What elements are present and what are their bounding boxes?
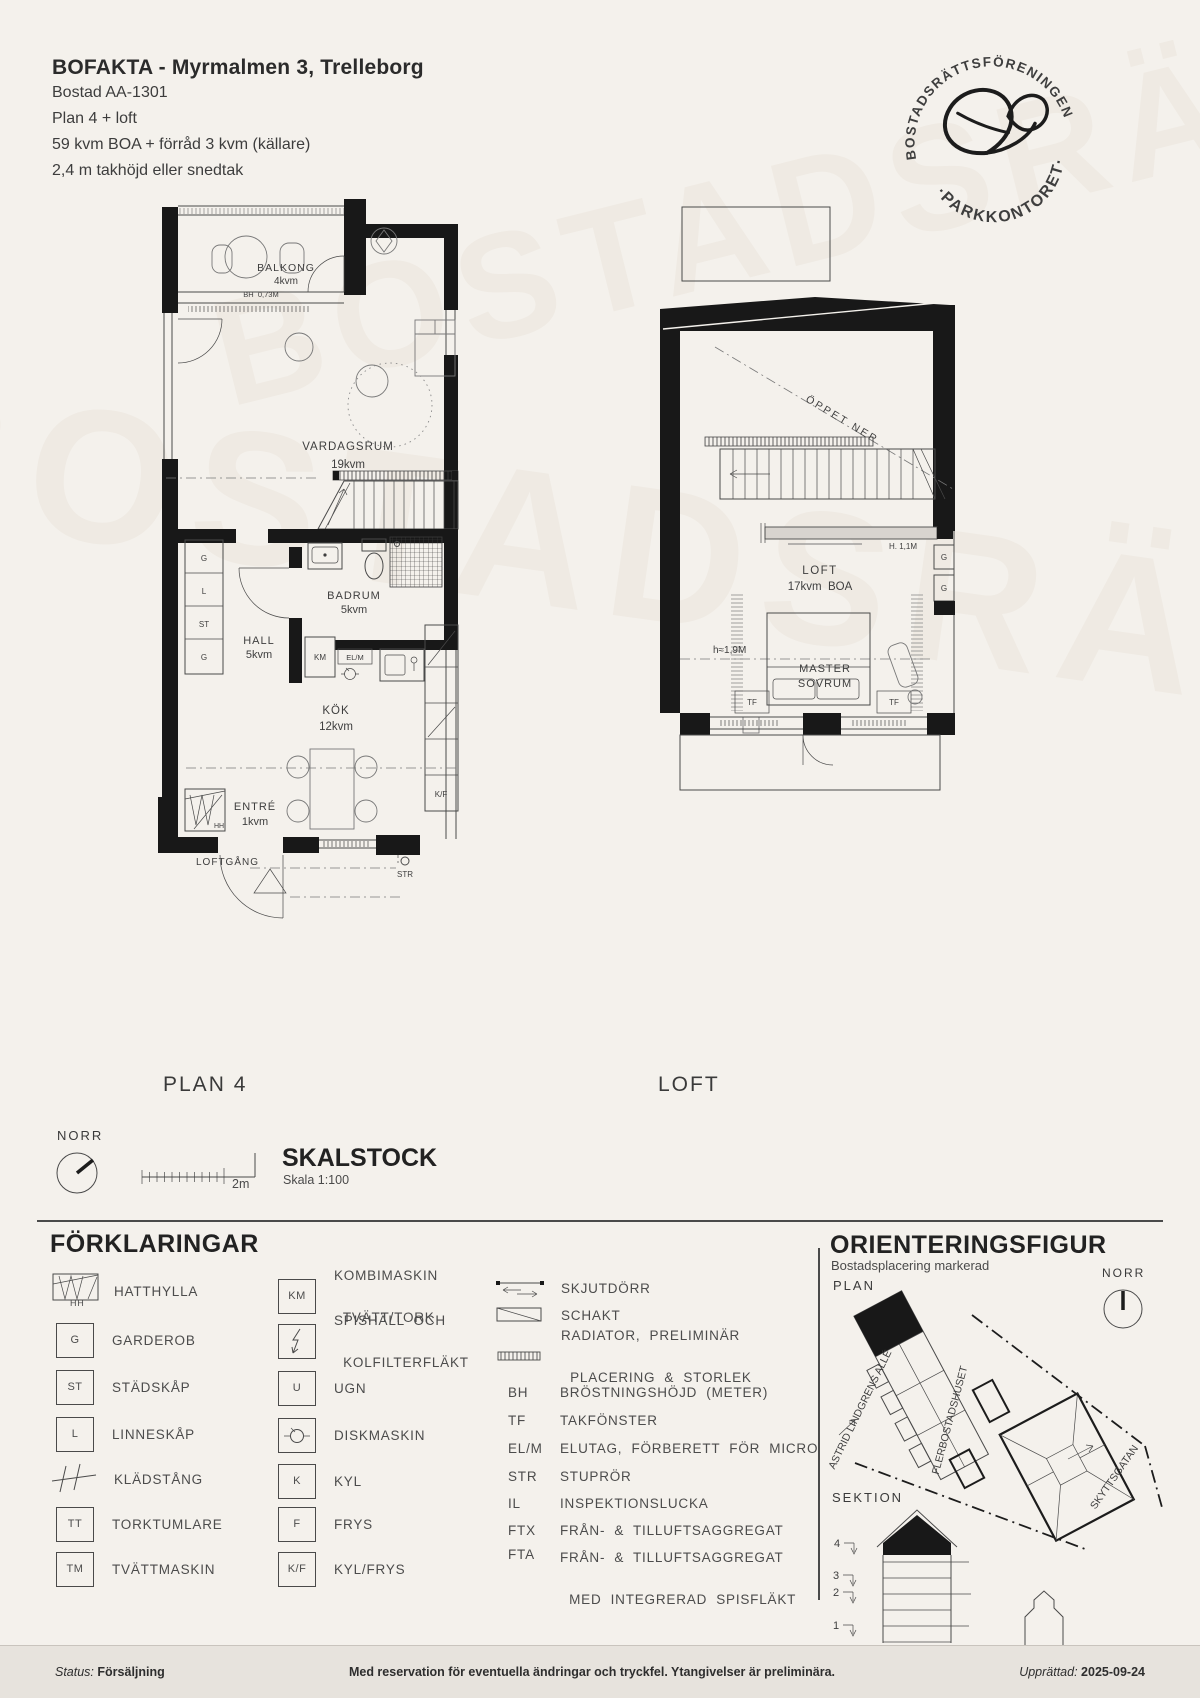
label-km: KM (314, 653, 326, 662)
dining-set (287, 749, 377, 829)
caption-plan4: PLAN 4 (163, 1073, 247, 1097)
legend-item-diskmaskin: DISKMASKIN (278, 1417, 425, 1453)
label-str: STR (397, 870, 413, 879)
closet-l: L (202, 587, 207, 596)
terrace-door (803, 735, 833, 765)
scale-length: 2m (232, 1177, 249, 1191)
legend-item-torktumlare: TT TORKTUMLARE (56, 1506, 223, 1542)
room-label-hall: HALL (243, 635, 275, 647)
legend-label: FRYS (334, 1514, 373, 1535)
header: BOFAKTA - Myrmalmen 3, Trelleborg Bostad… (52, 56, 424, 184)
room-label-entre: ENTRÉ (234, 800, 276, 813)
abbr: IL (508, 1496, 560, 1511)
room-label-master-1: MASTER (799, 663, 851, 675)
page-title: BOFAKTA - Myrmalmen 3, Trelleborg (52, 56, 424, 80)
symbol-box: K/F (278, 1552, 316, 1587)
kitchen-counter-right (425, 625, 458, 811)
legend-label: KYL (334, 1471, 362, 1492)
footer-disclaimer: Med reservation för eventuella ändringar… (165, 1665, 1019, 1679)
brand-logo: BOSTADSRÄTTSFÖRENINGEN ·PARKKONTORET· (882, 26, 1092, 226)
room-label-loft: LOFT (802, 565, 837, 577)
footer-created-label: Upprättad: (1019, 1665, 1077, 1679)
label-bh: BH 0,73M (243, 290, 278, 299)
label-h19: h≈1,9M (713, 645, 746, 656)
symbol-box: F (278, 1507, 316, 1542)
legend-label: TVÄTTMASKIN (112, 1559, 215, 1580)
room-area-balkong: 4kvm (274, 276, 298, 287)
door-arc (178, 319, 222, 363)
room-label-master-2: SOVRUM (798, 678, 852, 690)
room-label-balkong: BALKONG (257, 262, 315, 274)
loft-stairs (705, 437, 945, 499)
bottom-walls (168, 835, 420, 855)
legend-label-line1: SPISHÄLL OCH (334, 1313, 446, 1328)
legend-item-skjutdorr: SKJUTDÖRR (495, 1276, 651, 1300)
symbol-box: G (56, 1323, 94, 1358)
room-area-entre: 1kvm (242, 816, 268, 828)
map-street2-label: SKYTTSGATAN (1088, 1443, 1141, 1512)
abbr-label: TAKFÖNSTER (560, 1410, 658, 1431)
legend-abbr-str: STR STUPRÖR (508, 1465, 632, 1487)
label-kf: K/F (435, 790, 448, 799)
skjutdorr-icon (495, 1278, 545, 1298)
closet-g2: G (941, 584, 947, 593)
room-area-vardagsrum: 19kvm (331, 459, 365, 471)
skalstock-scale: Skala 1:100 (283, 1173, 349, 1187)
abbr-label-line1: FRÅN- & TILLUFTSAGGREGAT (560, 1550, 784, 1565)
map-block-small-1 (973, 1380, 1009, 1422)
floor-3: 3 (833, 1570, 839, 1582)
roof-outline (682, 207, 830, 281)
loft-closets: G G (934, 545, 955, 615)
legend-label: LINNESKÅP (112, 1424, 195, 1445)
floorplan-loft: ÖPPET NER H. 1,1M LOFT 17kvm BOA G G h≈1… (655, 197, 965, 797)
label-hh: HH (214, 823, 224, 830)
footer-status-value: Försäljning (97, 1665, 164, 1679)
legend-item-garderob: G GARDEROB (56, 1322, 196, 1358)
section-figure: 4 3 2 1 (820, 1505, 1190, 1645)
footer-status-label: Status: (55, 1665, 94, 1679)
section-house (877, 1510, 971, 1643)
norr-label: NORR (57, 1128, 103, 1143)
room-label-kok: KÖK (322, 705, 349, 717)
legend-label: DISKMASKIN (334, 1425, 425, 1446)
room-area-hall: 5kvm (246, 649, 272, 661)
legend-item-spishall: SPISHÄLL OCH KOLFILTERFLÄKT (278, 1323, 469, 1359)
closet-st: ST (199, 620, 209, 629)
logo-arc-top: BOSTADSRÄTTSFÖRENINGEN (883, 34, 1077, 163)
abbr: STR (508, 1469, 560, 1484)
orientation-norr-label: NORR (1102, 1266, 1145, 1280)
abbr-label: STUPRÖR (560, 1466, 632, 1487)
legend-label: KLÄDSTÅNG (114, 1469, 203, 1490)
logo-group: BOSTADSRÄTTSFÖRENINGEN ·PARKKONTORET· (882, 26, 1092, 226)
room-area-badrum: 5kvm (341, 604, 367, 616)
lightning-icon (287, 1327, 307, 1355)
symbol-box: TT (56, 1507, 94, 1542)
label-tf2: TF (889, 698, 899, 707)
legend-item-kylfrys: K/F KYL/FRYS (278, 1551, 405, 1587)
legend-item-tvattmaskin: TM TVÄTTMASKIN (56, 1551, 215, 1587)
abbr: TF (508, 1413, 560, 1428)
legend-label: HATTHYLLA (114, 1281, 198, 1302)
legend-item-radiator: RADIATOR, PRELIMINÄR PLACERING & STORLEK (495, 1334, 752, 1378)
room-label-vardagsrum: VARDAGSRUM (302, 441, 394, 453)
map-block-small-2 (950, 1449, 984, 1488)
legend-abbr-bh: BH BRÖSTNINGSHÖJD (METER) (508, 1381, 768, 1403)
legend-label-line2: KOLFILTERFLÄKT (343, 1355, 469, 1370)
takfonster (735, 691, 911, 713)
label-elm: EL/M (346, 653, 364, 662)
legend-abbr-il: IL INSPEKTIONSLUCKA (508, 1492, 709, 1514)
header-area: 59 kvm BOA + förråd 3 kvm (källare) (52, 132, 424, 158)
symbol-box: TM (56, 1552, 94, 1587)
footer-created-value: 2025-09-24 (1081, 1665, 1145, 1679)
loft-walls (660, 297, 955, 713)
abbr: FTA (508, 1547, 560, 1562)
orientation-heading: ORIENTERINGSFIGUR (830, 1231, 1107, 1260)
symbol-box: U (278, 1371, 316, 1406)
closet-g1: G (201, 554, 207, 563)
symbol-box: KM (278, 1279, 316, 1314)
stairs (318, 471, 458, 531)
legend-label: TORKTUMLARE (112, 1514, 223, 1535)
legend-item-schakt: SCHAKT (495, 1303, 621, 1327)
abbr-label-line2: MED INTEGRERAD SPISFLÄKT (569, 1592, 796, 1607)
kladstang-icon (50, 1462, 98, 1496)
orientation-sub: Bostadsplacering markerad (831, 1258, 989, 1273)
footer-bar: Status: Försäljning Med reservation för … (0, 1645, 1200, 1698)
legend-item-linneskap: L LINNESKÅP (56, 1416, 195, 1452)
legend-abbr-tf: TF TAKFÖNSTER (508, 1409, 658, 1431)
header-ceiling: 2,4 m takhöjd eller snedtak (52, 158, 424, 184)
symbol-box: K (278, 1464, 316, 1499)
closet-g2: G (201, 653, 207, 662)
leaf-icon (938, 74, 1055, 163)
room-area-kok: 12kvm (319, 721, 353, 733)
legend-label-line1: KOMBIMASKIN (334, 1268, 438, 1283)
legend-item-kladstang: KLÄDSTÅNG (50, 1461, 203, 1497)
label-tf1: TF (747, 698, 757, 707)
legend-label: GARDEROB (112, 1330, 196, 1351)
symbol-box: ST (56, 1370, 94, 1405)
room-label-loftgang: LOFTGÅNG (196, 855, 259, 868)
caption-loft: LOFT (658, 1073, 720, 1097)
abbr: BH (508, 1385, 560, 1400)
floor-markers: 4 3 2 1 (833, 1538, 857, 1636)
floorplan-plan4: BALKONG 4kvm BH 0,73M VARDAGSRUM (158, 197, 468, 947)
legend-label: UGN (334, 1378, 366, 1399)
header-unit: Bostad AA-1301 (52, 80, 424, 106)
abbr-label: INSPEKTIONSLUCKA (560, 1493, 709, 1514)
room-label-badrum: BADRUM (327, 590, 381, 602)
header-plan: Plan 4 + loft (52, 106, 424, 132)
legend-item-ugn: U UGN (278, 1370, 366, 1406)
legend-item-stadskap: ST STÄDSKÅP (56, 1369, 190, 1405)
map-street1-label: ASTRID LINDGRENS ALLÉ (825, 1348, 894, 1471)
abbr-label: ELUTAG, FÖRBERETT FÖR MICRO (560, 1438, 818, 1459)
terrace-outline (680, 735, 940, 790)
floor-2: 2 (833, 1587, 839, 1599)
diskmaskin-icon (282, 1423, 312, 1447)
abbr: EL/M (508, 1441, 560, 1456)
hall-closets: G L ST G (185, 540, 223, 674)
symbol-box: L (56, 1417, 94, 1452)
livingroom-furniture (285, 228, 455, 447)
skalstock-title: SKALSTOCK (282, 1144, 437, 1173)
room-area-loft: 17kvm BOA (788, 581, 853, 593)
legend-heading: FÖRKLARINGAR (50, 1230, 259, 1259)
legend-abbr-elm: EL/M ELUTAG, FÖRBERETT FÖR MICRO (508, 1437, 818, 1459)
legend-label-line1: RADIATOR, PRELIMINÄR (561, 1328, 740, 1343)
legend-item-kyl: K KYL (278, 1463, 362, 1499)
abbr-label: FRÅN- & TILLUFTSAGGREGAT (560, 1520, 784, 1541)
abbr: FTX (508, 1523, 560, 1538)
legend-item-hatthylla: HH HATTHYLLA (52, 1273, 198, 1309)
legend-label: SCHAKT (561, 1305, 621, 1326)
legend-label: STÄDSKÅP (112, 1377, 190, 1398)
legend-abbr-fta: FTA FRÅN- & TILLUFTSAGGREGAT MED INTEGRE… (508, 1547, 796, 1591)
legend-label: SKJUTDÖRR (561, 1278, 651, 1299)
north-compass-icon (53, 1148, 103, 1198)
floor-1: 1 (833, 1620, 839, 1632)
label-h11: H. 1,1M (889, 542, 917, 551)
radiator-icon (495, 1349, 545, 1363)
loft-bottom-walls (680, 713, 955, 735)
legend-label: KYL/FRYS (334, 1559, 405, 1580)
closet-g1: G (941, 553, 947, 562)
abbr-label: BRÖSTNINGSHÖJD (METER) (560, 1382, 768, 1403)
loft-railing (761, 523, 953, 544)
str-symbol (401, 857, 409, 865)
schakt-icon (495, 1306, 545, 1324)
legend-abbr-ftx: FTX FRÅN- & TILLUFTSAGGREGAT (508, 1519, 784, 1541)
sektion-label: SEKTION (832, 1490, 903, 1505)
legend-item-frys: F FRYS (278, 1506, 373, 1542)
section-house-small (1025, 1591, 1063, 1645)
floor-4: 4 (834, 1538, 840, 1550)
scale-bar (135, 1145, 270, 1190)
divider-horizontal (37, 1220, 1163, 1222)
street-arrow-east (1068, 1445, 1093, 1459)
